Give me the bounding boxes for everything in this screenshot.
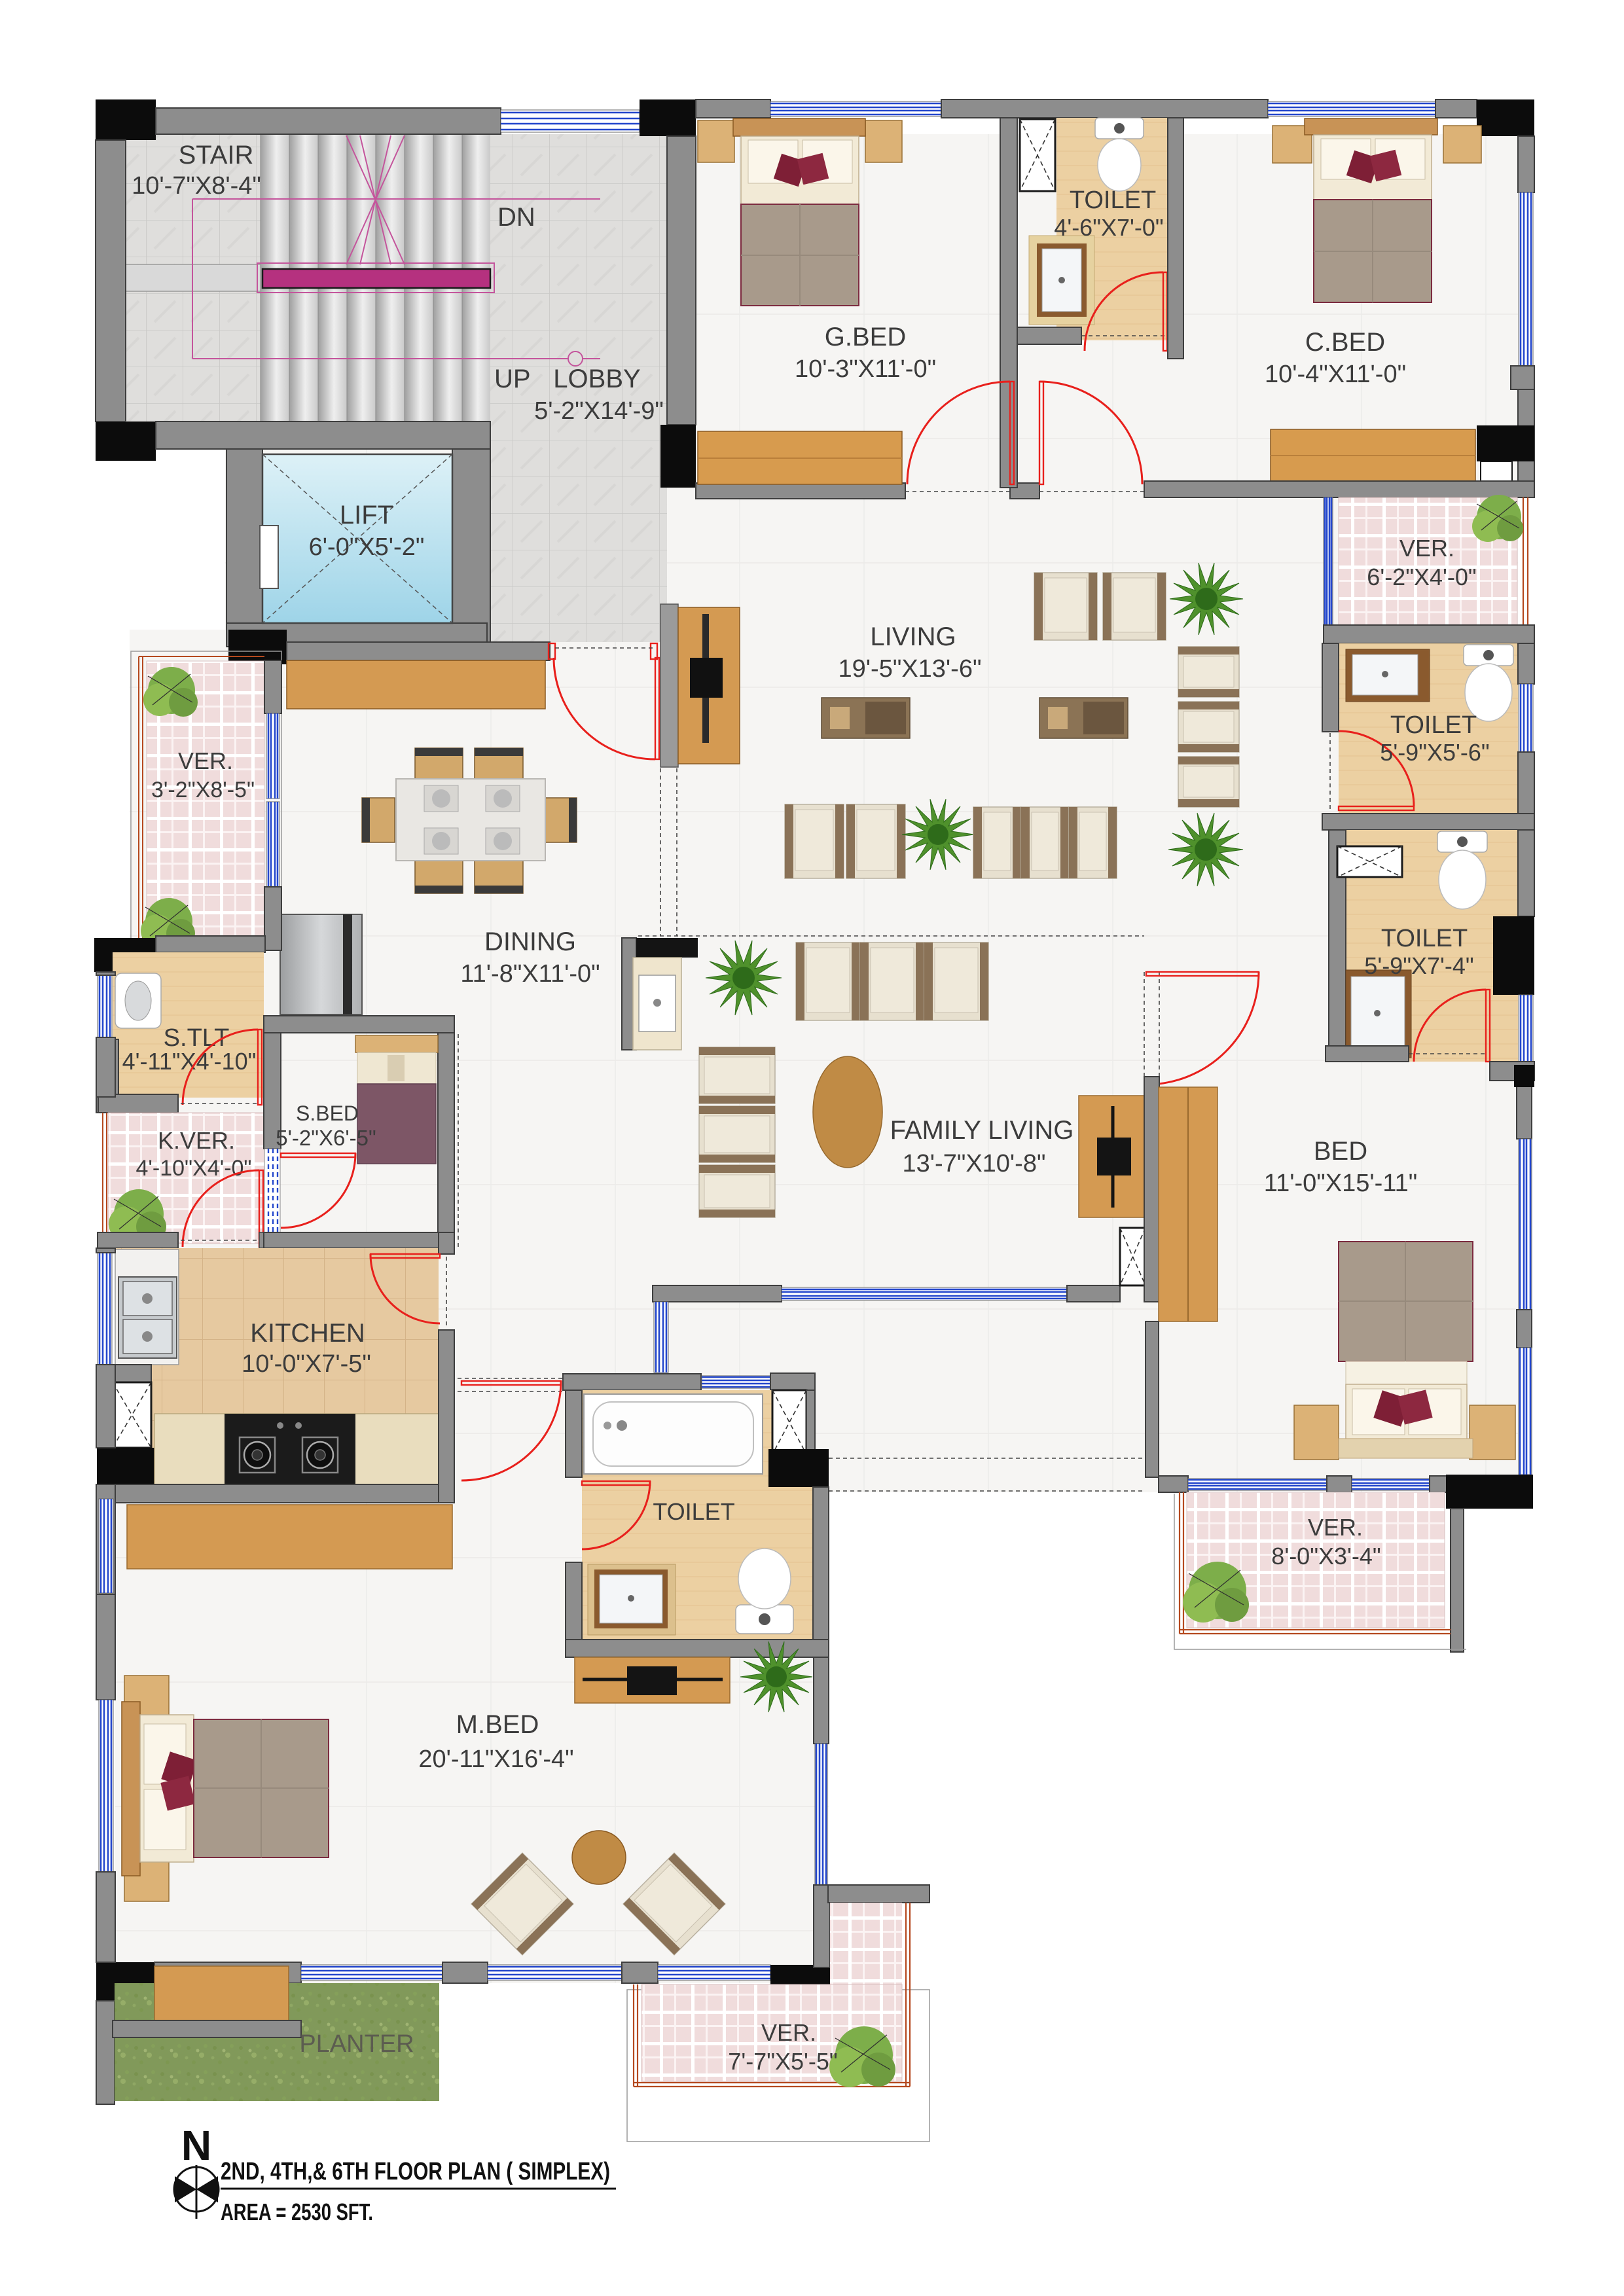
svg-text:LOBBY: LOBBY: [553, 365, 640, 393]
svg-text:6'-2"X4'-0": 6'-2"X4'-0": [1367, 564, 1476, 590]
svg-text:5'-2"X6'-5": 5'-2"X6'-5": [276, 1126, 376, 1150]
svg-text:DN: DN: [497, 203, 535, 232]
svg-text:VER.: VER.: [1308, 1514, 1363, 1541]
svg-text:STAIR: STAIR: [179, 141, 254, 170]
svg-text:5'-9"X5'-6": 5'-9"X5'-6": [1380, 739, 1489, 766]
svg-text:K.VER.: K.VER.: [158, 1127, 235, 1154]
svg-text:10'-3"X11'-0": 10'-3"X11'-0": [795, 355, 936, 383]
svg-text:DINING: DINING: [484, 927, 576, 956]
svg-text:5'-9"X7'-4": 5'-9"X7'-4": [1364, 952, 1473, 979]
svg-text:10'-7"X8'-4": 10'-7"X8'-4": [132, 172, 261, 200]
svg-text:G.BED: G.BED: [825, 323, 906, 351]
svg-text:5'-2"X14'-9": 5'-2"X14'-9": [534, 397, 664, 425]
svg-text:8'-0"X3'-4": 8'-0"X3'-4": [1271, 1543, 1380, 1570]
svg-text:11'-8"X11'-0": 11'-8"X11'-0": [460, 960, 600, 988]
svg-text:LIVING: LIVING: [870, 622, 956, 651]
svg-text:BED: BED: [1314, 1137, 1367, 1166]
svg-text:4'-10"X4'-0": 4'-10"X4'-0": [136, 1156, 252, 1181]
svg-text:FAMILY LIVING: FAMILY LIVING: [890, 1116, 1074, 1145]
svg-text:VER.: VER.: [761, 2019, 816, 2046]
svg-text:AREA = 2530 SFT.: AREA = 2530 SFT.: [221, 2198, 373, 2225]
svg-text:6'-0"X5'-2": 6'-0"X5'-2": [309, 533, 425, 561]
svg-text:4'-6"X7'-0": 4'-6"X7'-0": [1054, 214, 1163, 241]
svg-text:TOILET: TOILET: [1390, 711, 1477, 739]
svg-text:11'-0"X15'-11": 11'-0"X15'-11": [1264, 1170, 1417, 1197]
svg-text:VER.: VER.: [178, 747, 233, 774]
svg-text:TOILET: TOILET: [1381, 925, 1468, 952]
svg-text:S.BED: S.BED: [296, 1102, 359, 1125]
svg-text:7'-7"X5'-5": 7'-7"X5'-5": [728, 2048, 837, 2075]
svg-text:19'-5"X13'-6": 19'-5"X13'-6": [839, 655, 982, 683]
svg-text:3'-2"X8'-5": 3'-2"X8'-5": [151, 778, 255, 802]
svg-text:C.BED: C.BED: [1305, 328, 1385, 357]
svg-text:N: N: [181, 2122, 211, 2169]
svg-text:2ND, 4TH,& 6TH FLOOR PLAN ( SI: 2ND, 4TH,& 6TH FLOOR PLAN ( SIMPLEX): [221, 2158, 610, 2185]
svg-text:10'-4"X11'-0": 10'-4"X11'-0": [1265, 361, 1406, 388]
svg-text:KITCHEN: KITCHEN: [250, 1319, 365, 1348]
svg-text:M.BED: M.BED: [456, 1710, 539, 1739]
svg-text:4'-11"X4'-10": 4'-11"X4'-10": [122, 1048, 257, 1075]
svg-text:PLANTER: PLANTER: [299, 2030, 414, 2058]
svg-text:10'-0"X7'-5": 10'-0"X7'-5": [242, 1350, 371, 1378]
svg-text:TOILET: TOILET: [653, 1498, 734, 1525]
svg-text:UP: UP: [494, 365, 531, 393]
svg-text:20'-11"X16'-4": 20'-11"X16'-4": [418, 1746, 573, 1773]
svg-text:13'-7"X10'-8": 13'-7"X10'-8": [903, 1150, 1046, 1177]
svg-text:VER.: VER.: [1399, 535, 1454, 562]
svg-text:LIFT: LIFT: [340, 501, 393, 529]
svg-text:TOILET: TOILET: [1070, 187, 1156, 214]
